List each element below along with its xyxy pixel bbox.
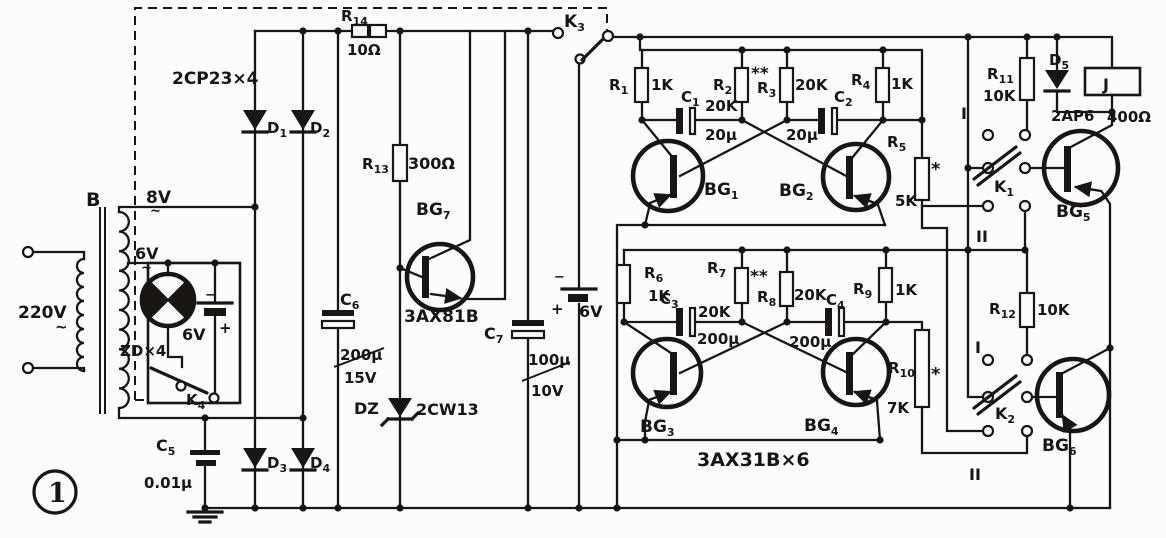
figure-number-text: 1 [48, 478, 67, 509]
r9-value: 1K [895, 281, 918, 299]
r13-label: R13 [362, 155, 389, 176]
c1-label: C1 [681, 88, 700, 109]
d3-label: D3 [267, 454, 287, 475]
figure-number: 1 [34, 471, 76, 513]
mains-terminal-top [23, 247, 33, 257]
d4-label: D4 [310, 454, 330, 475]
k2-contact-mid-right [1022, 392, 1032, 402]
r7-mark: ** [750, 267, 768, 287]
c5-label: C5 [156, 436, 175, 458]
k1-contact-ii-left [983, 201, 993, 211]
k2-contact-i-right [1022, 355, 1032, 365]
secondary-winding [119, 212, 129, 408]
diode-d5 [1045, 70, 1069, 89]
capacitor-c3 [676, 308, 683, 336]
r7-label: R7 [707, 259, 726, 280]
r1-value: 1K [651, 76, 674, 94]
c1-value: 20μ [705, 126, 737, 144]
c5-value: 0.01μ [144, 474, 192, 492]
k4-contact-left [177, 382, 186, 391]
c6-voltage: 15V [344, 369, 377, 387]
lower-multivibrator: R6 1K C3 20K 200μ R7 ** R8 20K C4 200μ R… [617, 250, 1027, 471]
r6-label: R6 [644, 264, 664, 285]
relay-label: J [1102, 75, 1109, 94]
resistor-r8 [780, 272, 793, 306]
resistor-r7 [735, 268, 748, 303]
resistor-r3 [780, 68, 793, 102]
capacitor-c2 [818, 108, 825, 134]
rectifier-type-label: 2CP23×4 [172, 69, 259, 89]
k1-contact-mid-right [1020, 163, 1030, 173]
schematic-page: B 220V ~ 8V ~ 6V ~ ZD×4 − + 6V K4 [0, 0, 1166, 538]
battery1-minus: − [205, 288, 216, 303]
c7-value: 100μ [528, 351, 570, 369]
dz-label: DZ [354, 399, 379, 418]
c4-label: C4 [826, 291, 845, 312]
battery1-value: 6V [182, 325, 206, 344]
relay-j-coil [1085, 68, 1140, 95]
diode-d1 [243, 110, 267, 130]
rectifier-bridge: 2CP23×4 D1 D2 D3 D4 [172, 31, 330, 508]
mains-terminal-bottom [23, 363, 33, 373]
k1-pos-ii-label: II [976, 227, 988, 246]
transistor-bg4 [823, 339, 889, 405]
output-lower-channel: R12 10K I K2 II BG6 [968, 250, 1110, 508]
capacitor-c5: C5 0.01μ [144, 418, 222, 522]
c7-voltage: 10V [531, 382, 564, 400]
k3-label: K3 [564, 12, 585, 34]
bg7-emitter-arrow [431, 294, 460, 298]
r11-value: 10K [983, 87, 1017, 105]
r8-value: 20K [794, 286, 828, 304]
core [100, 207, 105, 414]
transistor-type-label: 3AX31B×6 [697, 449, 810, 471]
bg7-type: 3AX81B [404, 307, 479, 327]
r14-label: R14 [341, 7, 368, 28]
lamp-battery-box: ZD×4 − + 6V K4 [120, 263, 240, 412]
c7-label: C7 [484, 324, 503, 346]
r2-value: 20K [705, 97, 739, 115]
tap-8v-ac: ~ [150, 204, 161, 219]
regulator-section: R13 300Ω DZ 2CW13 BG7 3AX81B [354, 31, 505, 508]
bg3-label: BG3 [640, 417, 675, 439]
r4-label: R4 [851, 71, 871, 92]
resistor-r11 [1020, 58, 1034, 100]
k1-contact-i-left [983, 130, 993, 140]
lamp-label: ZD×4 [120, 342, 166, 360]
r12-label: R12 [989, 300, 1016, 321]
r4-value: 1K [891, 75, 914, 93]
tap-8v-wire [119, 207, 255, 212]
r13-value: 300Ω [408, 154, 455, 173]
rectified-supply-line: R14 10Ω [255, 7, 552, 59]
bg6-label: BG6 [1042, 436, 1077, 458]
resistor-r10 [915, 330, 929, 407]
battery2-value: 6V [579, 302, 603, 321]
capacitor-c4 [825, 308, 832, 336]
battery-plate-thick [204, 308, 226, 316]
resistor-r9 [879, 268, 892, 302]
d2-label: D2 [310, 119, 330, 140]
k2-pos-i-label: I [975, 338, 981, 357]
r3-value: 20K [795, 76, 829, 94]
r12-value: 10K [1037, 301, 1071, 319]
dz-type: 2CW13 [416, 400, 479, 419]
c2-label: C2 [834, 88, 853, 109]
r5-value: 5K [895, 192, 918, 210]
power-unit-dashed-border [135, 8, 607, 400]
bg1-label: BG1 [704, 180, 739, 202]
r14-value: 10Ω [347, 41, 381, 59]
c4-value: 200μ [789, 333, 831, 351]
primary-winding [77, 259, 84, 371]
r1-label: R1 [609, 76, 628, 97]
capacitor-c6: C6 200μ 15V [322, 31, 384, 508]
resistor-r13 [393, 145, 407, 181]
k1-contact-ii-right [1020, 201, 1030, 211]
zener-dz [388, 398, 412, 417]
ground-symbol [188, 512, 222, 522]
k4-contact-right [210, 394, 219, 403]
r11-label: R11 [987, 65, 1014, 86]
r10-label: R10 [888, 359, 915, 380]
battery2-minus: − [554, 270, 565, 285]
mains-ac-symbol: ~ [55, 318, 68, 336]
k3-contact-left [553, 28, 563, 38]
d5-type: 2AP6 [1051, 107, 1094, 125]
r10-mark: * [931, 364, 941, 385]
resistor-r4 [876, 68, 889, 102]
circuit-schematic: B 220V ~ 8V ~ 6V ~ ZD×4 − + 6V K4 [0, 0, 1166, 538]
r5-label: R5 [887, 133, 906, 154]
diode-d3 [243, 448, 267, 468]
battery1-plus: + [219, 319, 232, 337]
k1-label: K1 [994, 177, 1014, 199]
k2-contact-ii-right [1022, 426, 1032, 436]
resistor-r6 [617, 265, 630, 303]
r8-label: R8 [757, 288, 776, 309]
bg4-label: BG4 [804, 416, 839, 438]
c3-value: 200μ [697, 330, 739, 348]
r5-mark: * [931, 159, 941, 180]
d1-label: D1 [267, 119, 287, 140]
k3-blade [582, 39, 603, 60]
r2-label: R2 [713, 76, 732, 97]
r9-label: R9 [853, 280, 872, 301]
secondary-bottom-wire [119, 408, 303, 418]
transformer-label: B [86, 189, 100, 211]
k2-contact-i-left [983, 355, 993, 365]
r7-value: 20K [698, 303, 732, 321]
resistor-r12 [1020, 293, 1034, 327]
c3-label: C3 [660, 290, 679, 311]
d5-label: D5 [1049, 51, 1069, 72]
resistor-r1 [635, 68, 648, 102]
k1-pos-i-label: I [961, 104, 967, 123]
c6-label: C6 [340, 290, 360, 312]
bg7-label: BG7 [416, 200, 451, 222]
capacitor-c1 [676, 108, 683, 134]
resistor-r5 [915, 158, 929, 200]
k2-contact-ii-left [983, 426, 993, 436]
bg2-label: BG2 [779, 181, 814, 203]
k4-label: K4 [186, 391, 206, 412]
k1-contact-i-right [1020, 130, 1030, 140]
c2-value: 20μ [786, 126, 818, 144]
k2-pos-ii-label: II [969, 465, 981, 484]
r10-value: 7K [887, 399, 910, 417]
battery2-plus: + [551, 300, 564, 318]
transistor-bg6 [1037, 359, 1109, 431]
backup-battery-k3: − + 6V K3 [551, 12, 613, 508]
k2-label: K2 [995, 404, 1015, 426]
r3-label: R3 [757, 79, 776, 100]
